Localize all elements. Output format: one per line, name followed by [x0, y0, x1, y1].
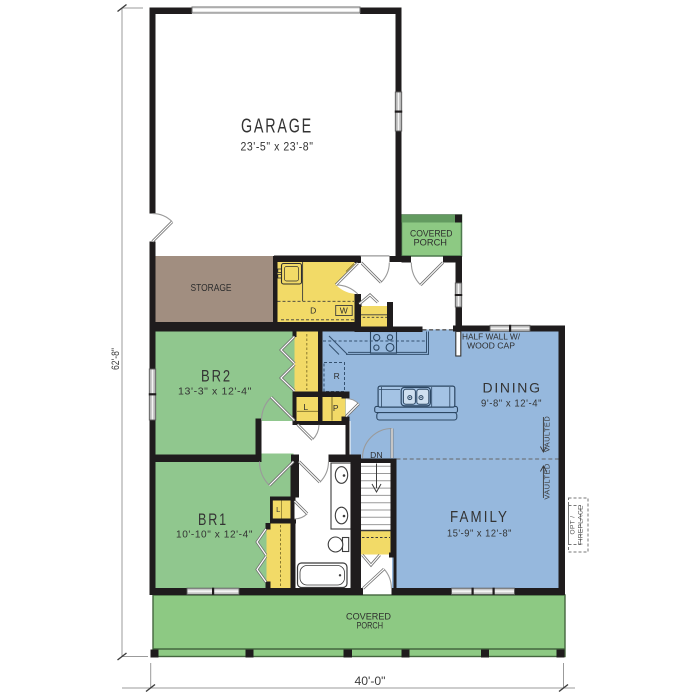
svg-text:STORAGE: STORAGE: [191, 283, 232, 294]
svg-text:10'-10" x 12'-4": 10'-10" x 12'-4": [176, 529, 253, 541]
svg-text:13'-3" x 12'-4": 13'-3" x 12'-4": [178, 386, 252, 398]
svg-text:BR1: BR1: [198, 510, 228, 529]
svg-text:PORCH: PORCH: [414, 238, 448, 248]
svg-text:HALF WALL W/: HALF WALL W/: [462, 333, 521, 342]
svg-text:40'-0": 40'-0": [355, 676, 386, 688]
svg-text:PORCH: PORCH: [357, 621, 384, 631]
svg-text:W: W: [340, 306, 349, 316]
svg-text:DINING: DINING: [483, 380, 542, 396]
svg-text:GARAGE: GARAGE: [241, 116, 313, 138]
svg-text:P: P: [333, 403, 339, 413]
svg-text:OPT /: OPT /: [570, 516, 577, 535]
svg-text:23'-5" x 23'-8": 23'-5" x 23'-8": [241, 142, 314, 154]
svg-text:R: R: [334, 371, 341, 381]
svg-text:BR2: BR2: [201, 367, 232, 386]
svg-text:L: L: [276, 505, 281, 514]
svg-text:D: D: [310, 306, 317, 316]
svg-text:FIREPLACE: FIREPLACE: [578, 505, 585, 545]
svg-text:DN: DN: [370, 450, 383, 460]
svg-text:9'-8" x 12'-4": 9'-8" x 12'-4": [481, 398, 542, 410]
svg-text:62'-8": 62'-8": [110, 348, 122, 370]
svg-text:L: L: [303, 402, 308, 412]
svg-text:FAMILY: FAMILY: [450, 509, 509, 526]
svg-text:WOOD CAP: WOOD CAP: [467, 342, 515, 351]
svg-text:15'-9" x 12'-8": 15'-9" x 12'-8": [447, 528, 512, 540]
